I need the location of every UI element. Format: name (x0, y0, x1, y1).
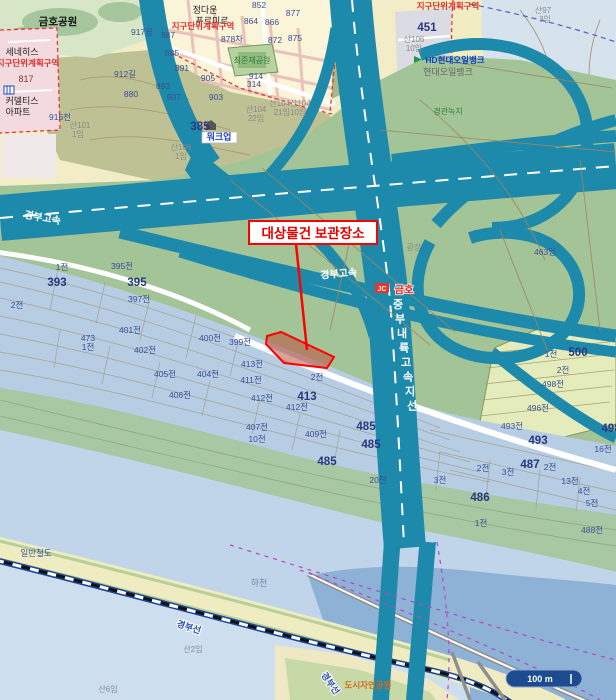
map-label: 409전 (305, 429, 327, 439)
map-label: 지구단위계획구역 (172, 21, 235, 31)
map-label: 10임 (406, 44, 422, 53)
map-label: 875 (288, 33, 302, 43)
map-label: 지구단위계획구역 (0, 58, 59, 68)
map-label: 877 (286, 8, 300, 18)
map-label: 817 (18, 74, 33, 84)
map-label: 16전 (594, 444, 611, 454)
map-label: 도시자연공원 (345, 680, 392, 690)
map-label: 3전 (434, 475, 447, 485)
scale-bar-label: 100 m (527, 674, 553, 684)
map-label: 407전 (246, 422, 268, 432)
map-label: 10전 (248, 434, 265, 444)
junction-name: 금호 (394, 283, 414, 296)
map-label: 893 (156, 81, 170, 91)
map-label: 880 (124, 89, 138, 99)
map-label: 496전 (527, 403, 549, 413)
map-label: 887 (161, 30, 175, 40)
map-label: 866 (265, 17, 279, 27)
map-label: 아파트 (6, 107, 31, 117)
map-label: 지구단위계획구역 (417, 1, 480, 11)
map-label: 커델티스 (5, 95, 38, 106)
map-label: 488전 (581, 525, 603, 535)
map-label: 406전 (169, 390, 191, 400)
map-label: 412전 (286, 402, 308, 412)
map-label: 400전 (199, 333, 221, 343)
junction-badge-label: JC (378, 286, 387, 293)
map-label: 463임 (534, 247, 556, 257)
map-label: 451 (417, 22, 437, 34)
map-label: 1전 (56, 262, 69, 272)
map-label: 22임 (248, 114, 264, 123)
map-label: 3임 (539, 15, 551, 24)
map-label: 4전 (578, 486, 591, 496)
map-label: 314 (247, 79, 261, 89)
map-label: 405전 (154, 369, 176, 379)
map-label: 산101 (70, 120, 91, 130)
map-label: 912길 (114, 69, 136, 79)
map-label: 금호공원 (39, 15, 78, 28)
map-label: 1임 (72, 130, 84, 139)
map-label: 정다운 (193, 5, 218, 15)
map-label: 1전 (545, 349, 558, 359)
map-label: 393 (47, 277, 66, 289)
map-label: 903 (209, 92, 223, 102)
map-label: 최준재공원 (234, 55, 271, 65)
map-label: 485 (361, 439, 381, 451)
map-label: 485 (317, 456, 337, 468)
map-label: 891 (175, 63, 189, 73)
map-label: 경관녹지 (433, 106, 462, 116)
annotation-text: 대상물건 보관장소 (261, 225, 365, 241)
map-label: 487 (520, 459, 539, 471)
map-label: HD현대오일뱅크 (425, 55, 484, 65)
map-label: 878차 (221, 34, 243, 44)
map-label: 917공 (131, 27, 153, 37)
map-label: 산104 (246, 104, 267, 114)
map-label: 905 (201, 73, 215, 83)
map-label: 411전 (240, 375, 261, 385)
map-label: 395전 (111, 261, 133, 271)
map-label: 500 (568, 347, 587, 359)
map-label: 1전 (475, 518, 488, 528)
map-label: 485 (356, 421, 376, 433)
map-label: 산2임 (183, 644, 202, 654)
map-label: 907 (167, 92, 181, 102)
map-label: 5전 (586, 498, 599, 508)
map-label: 워크업 (207, 131, 232, 142)
map-viewport[interactable]: JC 금호 금호공원정다운푸르미르지구단위계획구역지구단위계획구역지구단위계획구… (0, 0, 616, 700)
map-label: 현대오일뱅크 (423, 67, 473, 77)
map-label: 413전 (241, 359, 263, 369)
map-label: 산106 (171, 142, 192, 152)
map-label: 2전 (557, 365, 570, 375)
map-label: 498 (601, 423, 616, 435)
map-label: 395 (127, 277, 147, 289)
map-label: 산97 (535, 5, 552, 15)
map-label: 402전 (134, 345, 156, 355)
map-label: 산106 (404, 34, 425, 44)
map-label: 412전 (251, 393, 273, 403)
map-label: 2전 (11, 300, 24, 310)
map-label: 산6임 (98, 684, 117, 694)
map-label: 864 (244, 16, 258, 26)
map-label: 498전 (542, 379, 564, 389)
map-canvas[interactable]: JC 금호 금호공원정다운푸르미르지구단위계획구역지구단위계획구역지구단위계획구… (0, 0, 616, 700)
map-label: 885 (165, 48, 179, 58)
map-label: 2전 (477, 463, 490, 473)
map-label: 493전 (501, 421, 523, 431)
map-label: 하천 (251, 578, 268, 588)
map-label: 493 (528, 435, 547, 447)
map-label: 399전 (229, 337, 251, 347)
map-label: 397전 (128, 294, 150, 304)
map-label: 916천 (49, 112, 71, 122)
map-label: 20전 (369, 475, 386, 485)
map-label: 1임 (175, 152, 187, 161)
scale-bar: 100 m (506, 670, 582, 687)
map-label: 486 (470, 492, 489, 504)
map-label: 3전 (502, 467, 515, 477)
map-label: 산104산104 (269, 98, 311, 108)
map-label: 13전 (561, 476, 578, 486)
map-label: 21임10임 (274, 108, 307, 117)
map-label: 2전 (311, 372, 324, 382)
map-label: 404전 (197, 369, 219, 379)
map-label: 401전 (119, 325, 141, 335)
map-label: 일반철도 (20, 548, 51, 558)
building-icon (4, 86, 14, 94)
map-label: 광장 (407, 242, 422, 252)
map-label: 852 (252, 0, 266, 10)
map-label: 세네히스 (5, 47, 38, 57)
map-label: 2전 (544, 462, 557, 472)
map-label: 1전 (82, 342, 95, 352)
map-label: 872 (268, 35, 282, 45)
